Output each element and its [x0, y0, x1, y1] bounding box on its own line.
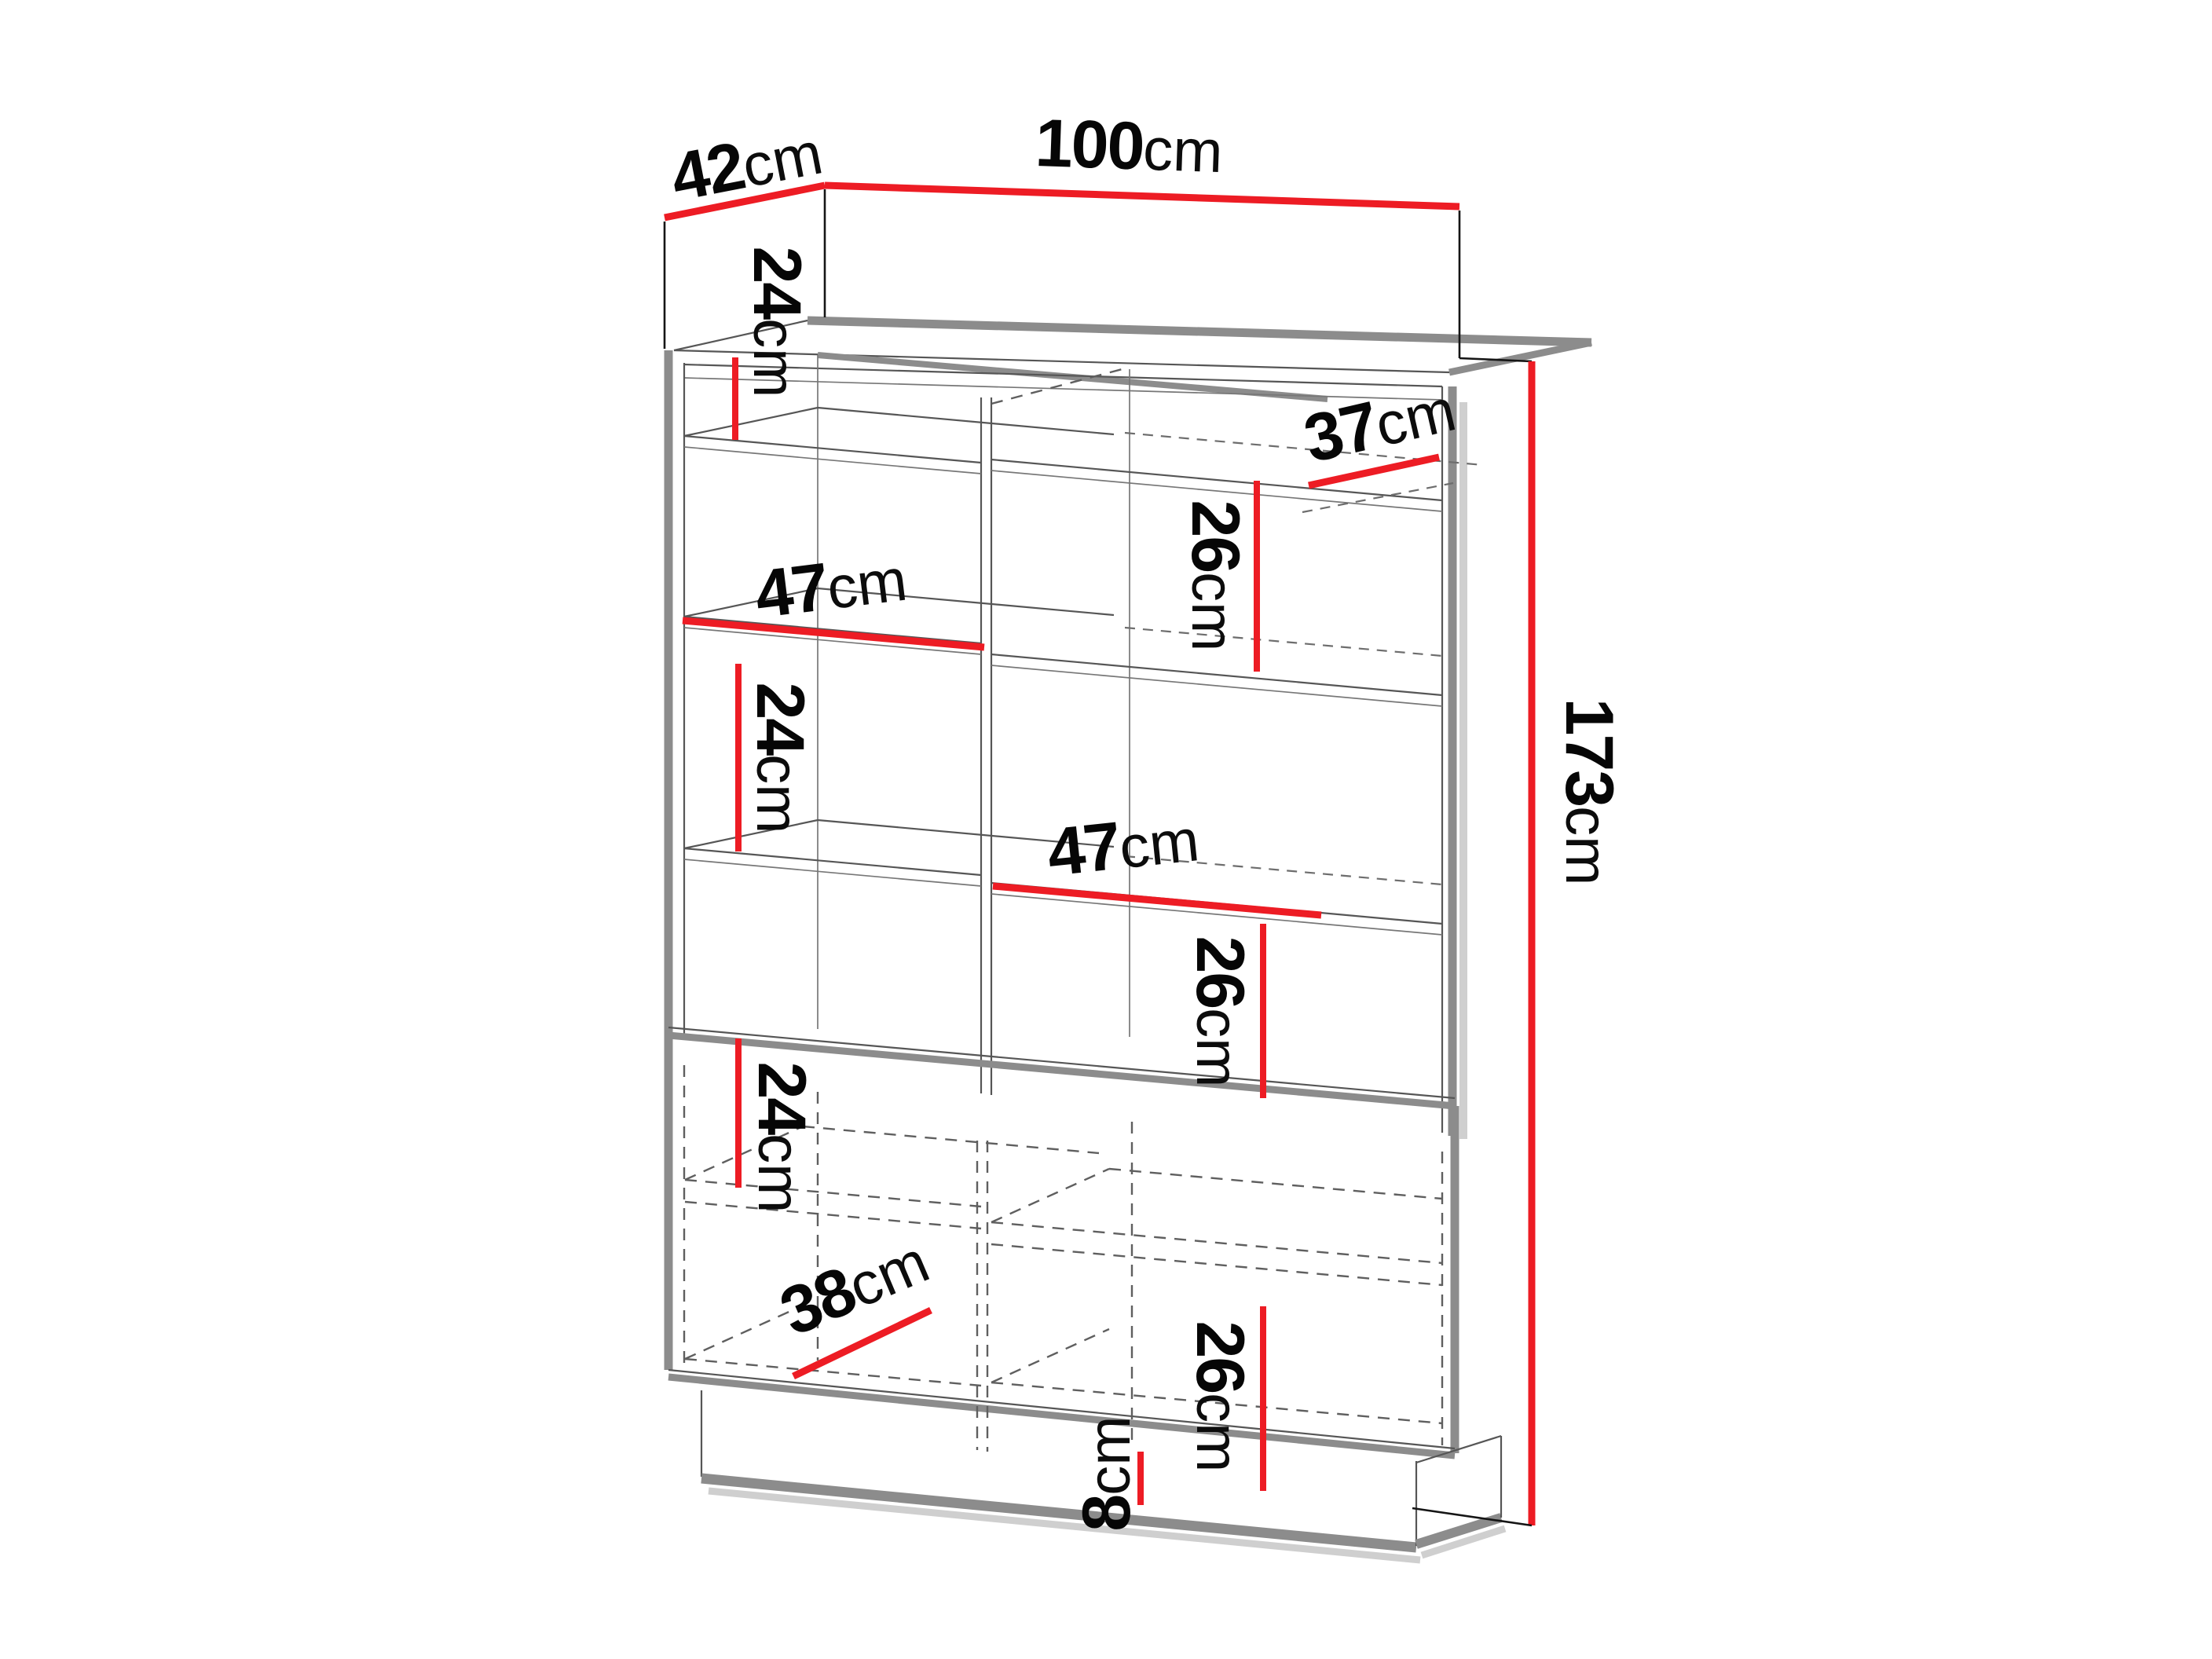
right-cell-mid-value: 26 — [1182, 936, 1258, 1009]
diagram-canvas: 42cm 100cm 173cm 37cm 24cm 47cm 24cm 26c… — [0, 0, 2212, 1659]
dim-plinth-8cm: 8cm — [1069, 1415, 1144, 1531]
dim-right-cell-top-26cm: 26cm — [1177, 481, 1257, 672]
door-cell-unit: cm — [745, 1133, 812, 1213]
height-label: 173cm — [1551, 698, 1627, 886]
left-shelf-unit: cm — [823, 547, 910, 623]
dim-left-cell-mid-24cm: 24cm — [738, 664, 818, 851]
dim-door-cell-24cm: 24cm — [738, 1038, 819, 1213]
bottom-right-cell-unit: cm — [1184, 1393, 1251, 1472]
left-shelf-value: 47 — [751, 549, 832, 632]
plinth-unit: cm — [1076, 1415, 1143, 1495]
right-shelf-value: 47 — [1044, 808, 1123, 891]
left-cell-top-value: 24 — [739, 247, 815, 320]
left-cell-mid-value: 24 — [742, 683, 818, 756]
width-value: 100 — [1034, 105, 1144, 185]
height-unit: cm — [1553, 806, 1620, 885]
cabinet-dimension-diagram: 42cm 100cm 173cm 37cm 24cm 47cm 24cm 26c… — [0, 0, 2212, 1659]
right-shelf-unit: cm — [1116, 807, 1203, 881]
left-cell-top-unit: cm — [741, 318, 808, 397]
right-cell-top-label: 26cm — [1177, 500, 1253, 652]
plinth-label: 8cm — [1069, 1415, 1144, 1531]
left-cell-mid-label: 24cm — [742, 683, 818, 834]
left-cell-top-label: 24cm — [739, 247, 815, 398]
bottom-right-cell-value: 26 — [1182, 1321, 1258, 1393]
height-value: 173 — [1551, 698, 1627, 807]
right-cell-top-unit: cm — [1179, 572, 1246, 651]
depth-value: 42 — [665, 128, 749, 216]
dim-right-cell-mid-26cm: 26cm — [1182, 924, 1263, 1098]
width-unit: cm — [1142, 116, 1224, 185]
right-cell-top-value: 26 — [1177, 500, 1253, 573]
plinth-value: 8 — [1069, 1496, 1144, 1532]
door-cell-label: 24cm — [744, 1062, 819, 1214]
right-cell-mid-unit: cm — [1184, 1008, 1251, 1087]
door-cell-value: 24 — [744, 1062, 819, 1136]
bottom-right-cell-label: 26cm — [1182, 1321, 1258, 1473]
dim-bottom-right-cell-26cm: 26cm — [1182, 1306, 1263, 1491]
left-cell-mid-unit: cm — [744, 754, 811, 833]
right-cell-mid-label: 26cm — [1182, 936, 1258, 1088]
width-label: 100cm — [1034, 105, 1224, 187]
